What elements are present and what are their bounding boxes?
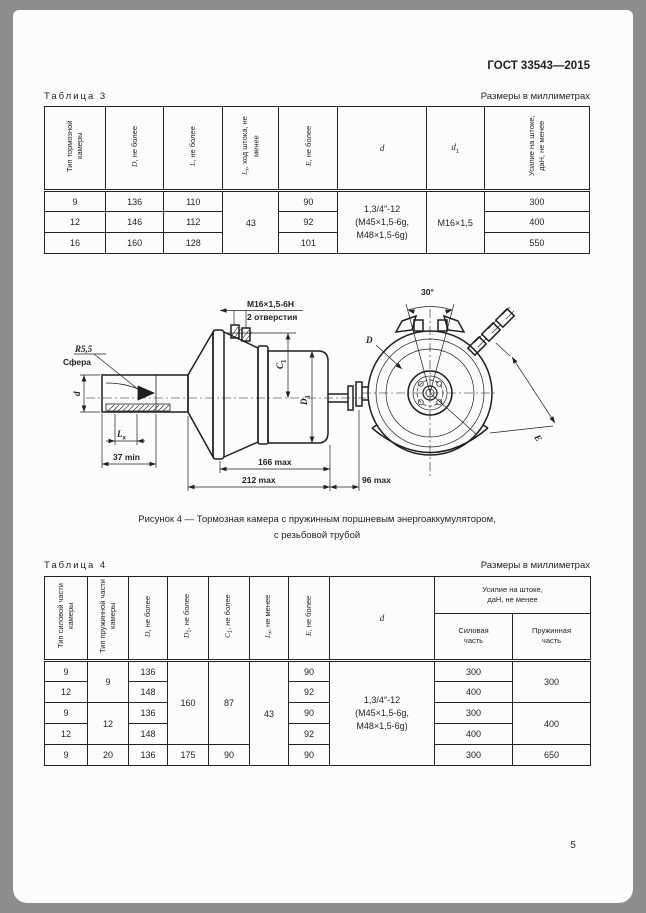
cell: 160 [106, 233, 164, 254]
lx-dim-label: Lх [116, 429, 127, 442]
cell: 300 [484, 191, 589, 212]
cell: 148 [129, 682, 168, 703]
cell: 146 [106, 212, 164, 233]
cell: 400 [435, 724, 513, 745]
cell: 87 [209, 661, 250, 745]
t4-col-D: D, не более [129, 577, 168, 661]
t4-col-force-power: Силовая часть [435, 613, 513, 660]
table-4: Тип силовой части камеры Тип пружинной ч… [44, 576, 591, 766]
cell: 400 [484, 212, 589, 233]
document-page: ГОСТ 33543—2015 Таблица 3 Размеры в милл… [13, 10, 633, 903]
table-row: 9 20 136 175 90 90 300 650 [45, 745, 591, 766]
cell: 16 [45, 233, 106, 254]
t3-col-L: L, не более [164, 107, 223, 191]
cell: 650 [513, 745, 591, 766]
side-view-details [106, 327, 252, 412]
table-row: 16 160 128 101 550 [45, 233, 590, 254]
angle-30-label: 30° [421, 287, 434, 297]
cell: 400 [513, 703, 591, 745]
cell: 300 [513, 661, 591, 703]
cell: 136 [129, 703, 168, 724]
cell: М16×1,5 [426, 191, 484, 254]
table4-caption-row: Таблица 4 Размеры в миллиметрах [44, 560, 590, 571]
cell: 300 [435, 661, 513, 682]
t4-col-C1: C1, не более [209, 577, 250, 661]
t3-col-E: E, не более [279, 107, 338, 191]
table-row: 9 12 136 90 300 400 [45, 703, 591, 724]
t4-col-d: d [330, 577, 435, 661]
t3-col-force: Усилие на штоке, даН, не менее [484, 107, 589, 191]
cell: 92 [279, 212, 338, 233]
cell: 9 [45, 703, 88, 724]
cell: 128 [164, 233, 223, 254]
dim-212-label: 212 max [242, 475, 276, 485]
cell: 400 [435, 682, 513, 703]
cell: 43 [250, 661, 289, 766]
t3-col-D: D, не более [106, 107, 164, 191]
dim-166-label: 166 max [258, 457, 292, 467]
t3-col-Lx: Lх, ход штока, не менее [223, 107, 279, 191]
page-number: 5 [553, 840, 593, 851]
table3-units-note: Размеры в миллиметрах [481, 91, 590, 102]
c1-dim-label: C1 [275, 359, 288, 369]
cell: 9 [45, 191, 106, 212]
cell: 9 [45, 745, 88, 766]
table-3: Тип тормозной камеры D, не более L, не б… [44, 106, 590, 254]
cell: 92 [289, 724, 330, 745]
cell: 12 [45, 724, 88, 745]
figure-caption: Рисунок 4 — Тормозная камера с пружинным… [44, 512, 590, 544]
t4-col-Lx: Lх, не менее [250, 577, 289, 661]
cell: 101 [279, 233, 338, 254]
cell: 175 [168, 745, 209, 766]
figure-4-drawing: R5,5 Сфера d Lх 37 min М16×1,5-6Н 2 отве… [50, 283, 606, 495]
t4-col-D1: D1, не более [168, 577, 209, 661]
dim-37-label: 37 min [113, 452, 140, 462]
table4-title: Таблица 4 [44, 560, 107, 571]
cell: 12 [45, 212, 106, 233]
arrowheads [82, 308, 557, 490]
cell: 90 [279, 191, 338, 212]
cell: 20 [88, 745, 129, 766]
cell: 1,3/4″-12 (М45×1,5-6g, М48×1,5-6g) [330, 661, 435, 766]
radius-label: R5,5 [74, 344, 93, 354]
t4-col-type-power: Тип силовой части камеры [45, 577, 88, 661]
cell: 90 [289, 661, 330, 682]
cell: 160 [168, 661, 209, 745]
t3-col-d1: d1 [426, 107, 484, 191]
thread-label: М16×1,5-6Н [247, 299, 294, 309]
cell: 148 [129, 724, 168, 745]
cell: 112 [164, 212, 223, 233]
t4-col-type-spring: Тип пружинной части камеры [88, 577, 129, 661]
d-dim-label: d [72, 391, 82, 396]
figure-caption-line2: с резьбовой трубой [44, 528, 590, 544]
t4-col-E: E, не более [289, 577, 330, 661]
table-row: 9 9 136 160 87 43 90 1,3/4″-12 (М45×1,5-… [45, 661, 591, 682]
cell: 136 [106, 191, 164, 212]
figure-caption-line1: Рисунок 4 — Тормозная камера с пружинным… [44, 512, 590, 528]
sphere-label: Сфера [63, 357, 91, 367]
table-row: 12 146 112 92 400 [45, 212, 590, 233]
cell: 9 [88, 661, 129, 703]
t4-col-force-group: Усилие на штоке, даН, не менее [435, 577, 591, 614]
doc-number: ГОСТ 33543—2015 [44, 60, 590, 72]
cell: 1,3/4″-12 (М45×1,5-6g, М48×1,5-6g) [338, 191, 426, 254]
cell: 300 [435, 745, 513, 766]
table4-units-note: Размеры в миллиметрах [481, 560, 590, 571]
cell: 300 [435, 703, 513, 724]
t4-col-force-spring: Пружинная часть [513, 613, 591, 660]
cell: 9 [45, 661, 88, 682]
cell: 12 [45, 682, 88, 703]
cell: 43 [223, 191, 279, 254]
t3-col-type: Тип тормозной камеры [45, 107, 106, 191]
table-row: 9 136 110 43 90 1,3/4″-12 (М45×1,5-6g, М… [45, 191, 590, 212]
t3-col-d: d [338, 107, 426, 191]
cell: 136 [129, 745, 168, 766]
cell: 110 [164, 191, 223, 212]
cell: 90 [209, 745, 250, 766]
table3-title: Таблица 3 [44, 91, 107, 102]
cell: 12 [88, 703, 129, 745]
cell: 136 [129, 661, 168, 682]
holes-label: 2 отверстия [247, 312, 297, 322]
table3-caption-row: Таблица 3 Размеры в миллиметрах [44, 91, 590, 102]
d1-dim-label: D1 [299, 395, 312, 407]
cell: 90 [289, 745, 330, 766]
cell: 92 [289, 682, 330, 703]
dim-96-label: 96 max [362, 475, 391, 485]
cell: 90 [289, 703, 330, 724]
E-dim-label: E [532, 432, 544, 443]
D-dim-label: D [365, 335, 373, 345]
cell: 550 [484, 233, 589, 254]
